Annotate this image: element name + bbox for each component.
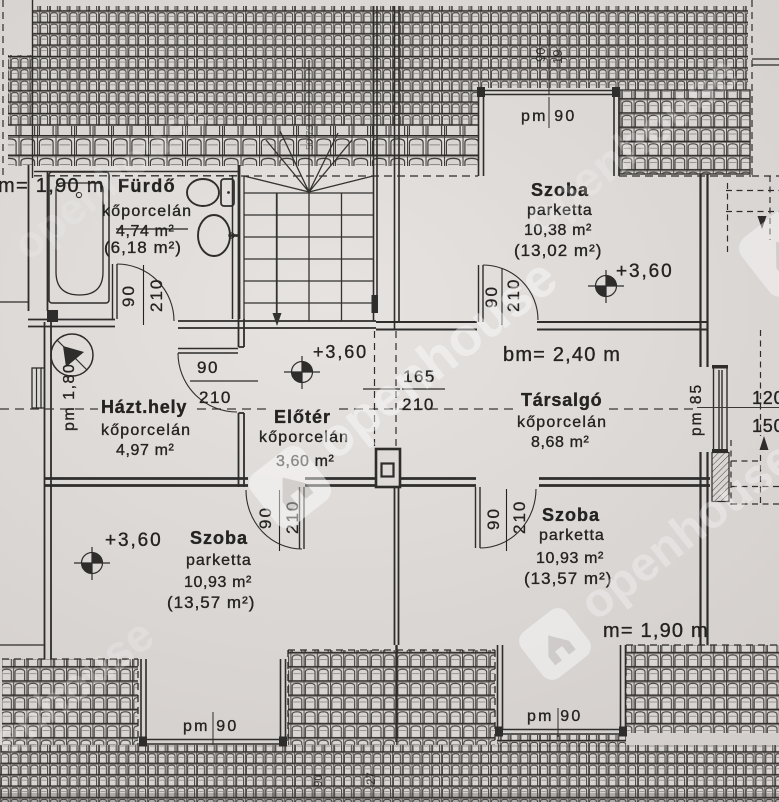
svg-text:10,93 m²: 10,93 m² — [536, 550, 604, 567]
svg-text:210: 210 — [147, 278, 166, 312]
svg-text:Társalgó: Társalgó — [521, 390, 602, 410]
svg-text:90: 90 — [533, 48, 548, 62]
svg-text:pm 90: pm 90 — [527, 708, 582, 725]
svg-text:parketta: parketta — [186, 552, 252, 569]
svg-text:90: 90 — [313, 774, 325, 787]
svg-text:kőporcelán: kőporcelán — [517, 414, 607, 431]
svg-text:19: 19 — [550, 50, 565, 64]
svg-text:bm= 2,40 m: bm= 2,40 m — [503, 344, 621, 366]
svg-text:+3,60: +3,60 — [616, 261, 674, 282]
svg-text:Házt.hely: Házt.hely — [101, 397, 187, 417]
svg-text:parketta: parketta — [539, 527, 605, 544]
svg-text:(6,18 m²): (6,18 m²) — [104, 238, 182, 257]
svg-text:10,93 m²: 10,93 m² — [184, 574, 252, 591]
svg-text:pm 85: pm 85 — [688, 383, 705, 436]
svg-text:210: 210 — [199, 388, 232, 407]
svg-text:90: 90 — [119, 284, 138, 307]
svg-text:8,68 m²: 8,68 m² — [531, 434, 590, 451]
svg-text:120: 120 — [752, 388, 779, 408]
svg-text:+3,60: +3,60 — [105, 530, 163, 551]
svg-text:50/73: 50/73 — [305, 125, 316, 150]
svg-text:pm 90: pm 90 — [521, 108, 576, 125]
svg-text:+3,60: +3,60 — [313, 342, 368, 362]
svg-text:Szoba: Szoba — [542, 505, 600, 525]
svg-text:27: 27 — [366, 772, 378, 785]
svg-text:pm 90: pm 90 — [183, 718, 238, 735]
svg-text:pm 1,80: pm 1,80 — [61, 363, 78, 431]
svg-text:m= 1,90 m: m= 1,90 m — [603, 620, 709, 642]
svg-text:kőporcelán: kőporcelán — [101, 422, 191, 439]
svg-text:4,97 m²: 4,97 m² — [116, 442, 175, 459]
svg-text:210: 210 — [510, 500, 529, 534]
svg-text:(13,57 m²): (13,57 m²) — [167, 593, 255, 612]
svg-text:Szoba: Szoba — [190, 528, 248, 548]
svg-text:90: 90 — [484, 507, 503, 530]
svg-text:150: 150 — [752, 416, 779, 436]
svg-text:90: 90 — [197, 358, 219, 377]
